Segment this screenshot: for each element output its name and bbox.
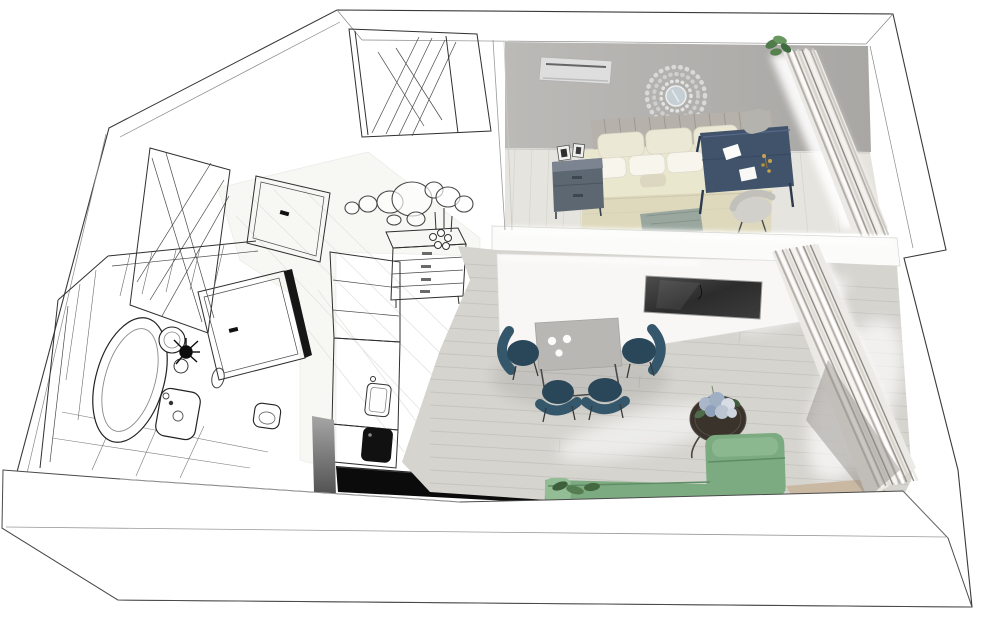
cooktop xyxy=(361,427,394,463)
toilet xyxy=(252,402,281,429)
floor-plan-canvas xyxy=(0,0,1000,632)
washbasin xyxy=(154,387,202,441)
living-room xyxy=(402,244,922,511)
floor-plan-stage xyxy=(0,0,1000,632)
bedroom xyxy=(505,34,888,238)
tv xyxy=(644,276,762,319)
air-conditioner xyxy=(539,57,612,84)
kitchen-side-panel xyxy=(312,416,336,497)
